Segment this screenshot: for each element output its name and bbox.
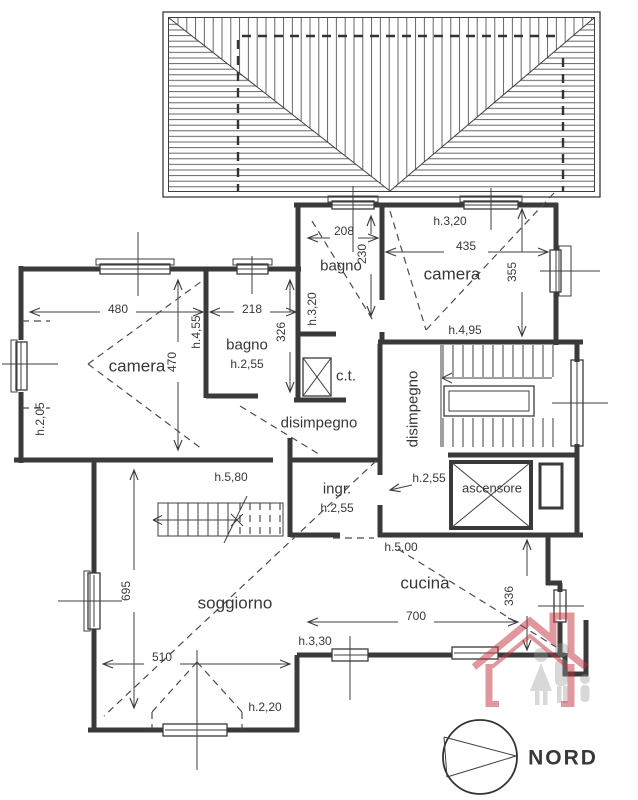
floor-plan-drawing: 480 218 h.4,55 470 camera bagno h.2,55 3…: [0, 0, 638, 800]
dim-336: 336: [502, 586, 516, 606]
room-label-disimpegno-dx: disimpegno: [405, 371, 422, 448]
window-camera-sx-top: [96, 259, 174, 274]
height-label-h500: h.5,00: [384, 540, 418, 554]
internal-staircase-soggiorno: [153, 496, 283, 543]
dim-695: 695: [119, 581, 133, 601]
dim-510: 510: [152, 650, 172, 664]
dim-700: 700: [406, 609, 426, 623]
shaft-duct: [540, 464, 562, 508]
text-labels: 480 218 h.4,55 470 camera bagno h.2,55 3…: [33, 214, 522, 714]
dim-218: 218: [242, 302, 262, 316]
dim-470: 470: [165, 352, 179, 372]
room-label-ascensore: ascensore: [462, 481, 522, 496]
height-label-h320-camera: h.3,20: [433, 214, 467, 228]
compass-needle-top: [444, 737, 516, 756]
compass-circle: [443, 720, 517, 794]
room-label-bagno-c: bagno: [320, 258, 362, 275]
agency-logo-watermark: [474, 616, 590, 707]
height-label-h580: h.5,80: [214, 470, 248, 484]
hip-roof: [163, 12, 600, 197]
room-label-soggiorno: soggiorno: [198, 594, 273, 613]
room-label-ingr: ingr.: [323, 481, 351, 498]
walls: [14, 203, 588, 732]
ct-closet: [303, 358, 331, 396]
room-label-disimpegno-c: disimpegno: [281, 415, 358, 432]
dim-355: 355: [505, 262, 519, 282]
height-label-h495: h.4,95: [448, 323, 482, 337]
room-label-camera-dx: camera: [424, 265, 481, 284]
room-label-camera-sx: camera: [109, 357, 166, 376]
height-label-h220: h.2,20: [248, 700, 282, 714]
height-label-h330: h.3,30: [298, 634, 332, 648]
height-label-h205: h.2,05: [33, 402, 47, 436]
house-icon: [474, 616, 586, 707]
window-camera-sx-left: [11, 340, 27, 392]
room-label-cucina: cucina: [400, 574, 450, 593]
compass-label: NORD: [528, 747, 598, 770]
dim-208: 208: [334, 224, 354, 238]
window-soggiorno-bay: [163, 724, 227, 736]
room-label-bagno-sx: bagno: [226, 337, 268, 354]
height-label-ingr: h.2,55: [320, 501, 354, 515]
height-label-bagno-sx: h.2,55: [230, 357, 264, 371]
dim-326: 326: [274, 322, 288, 342]
room-label-ct: c.t.: [336, 368, 356, 385]
height-label-h455: h.4,55: [189, 315, 203, 349]
floor-plan-page: 480 218 h.4,55 470 camera bagno h.2,55 3…: [0, 0, 638, 800]
north-compass: NORD: [443, 720, 598, 794]
main-staircase: [441, 345, 553, 447]
height-label-disimpegno-dx: h.2,55: [412, 471, 446, 485]
dim-480: 480: [108, 302, 128, 316]
compass-needle-bottom: [447, 756, 516, 777]
height-label-h320-bagno: h.3,20: [305, 292, 319, 326]
dim-435: 435: [456, 239, 476, 253]
